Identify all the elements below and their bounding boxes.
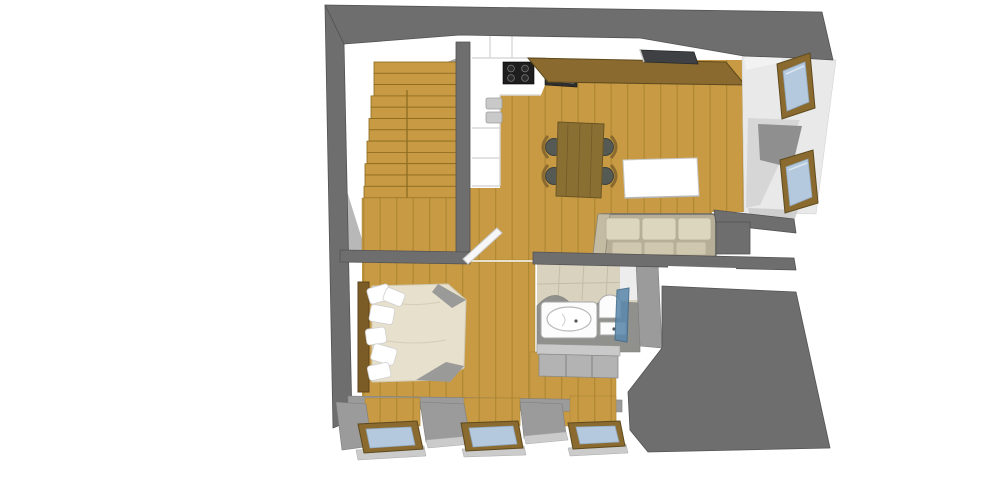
roof-window-3 [568,421,625,449]
roof-window-2 [461,421,523,451]
bathroom [537,262,662,378]
shower-screen [615,288,629,342]
dormer-window-1 [777,53,815,119]
bathtub [541,302,597,338]
step-wall-stub [716,222,750,254]
stair-right-wall [456,42,470,262]
stair-flights [364,62,457,198]
dormer-window-2 [780,150,818,213]
roof-notch-2 [668,266,736,286]
floor-plan-render [0,0,1000,480]
bed [358,282,466,392]
coffee-table [623,158,699,198]
bedroom-top-wall [340,250,470,264]
roof-skylight [640,50,698,64]
kitchen-cooktop [503,62,534,84]
roof-window-1 [358,421,423,453]
bay-floor-3 [570,396,616,425]
staircase [346,46,457,262]
vanity-cabinets [537,344,620,378]
sofa [593,214,716,258]
breakfast-bar [528,58,745,85]
dining-table [556,122,604,198]
floor-plan-canvas [0,0,1000,480]
bathroom-right-wall [636,262,662,348]
